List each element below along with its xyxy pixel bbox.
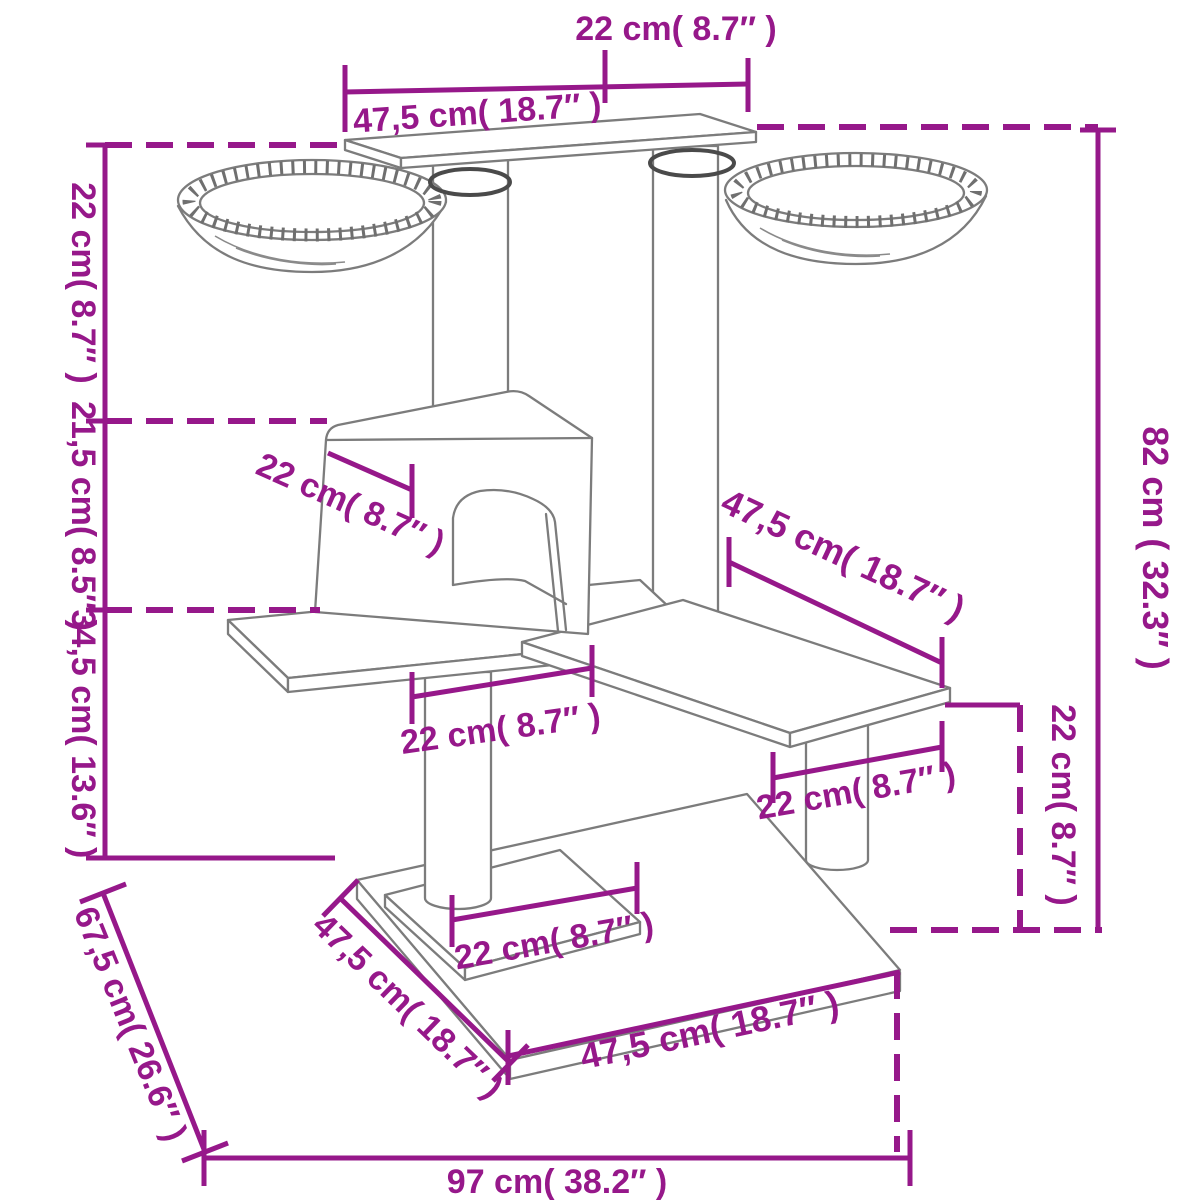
right-bowl xyxy=(725,153,987,264)
cat-tree-dimension-diagram: 22 cm( 8.7″ ) 47,5 cm( 18.7″ ) 22 cm( 8.… xyxy=(0,0,1200,1200)
diagram-canvas: 22 cm( 8.7″ ) 47,5 cm( 18.7″ ) 22 cm( 8.… xyxy=(0,0,1200,1200)
house-support-post xyxy=(425,672,491,909)
dim-height-lower-section: 34,5 cm( 13.6″ ) xyxy=(64,610,102,859)
dim-step-height: 22 cm( 8.7″ ) xyxy=(1044,704,1082,906)
dim-base-depth-diagonal: 67,5 cm( 26.6″ ) xyxy=(66,901,194,1146)
left-bowl xyxy=(178,160,446,272)
dim-height-top-section: 22 cm( 8.7″ ) xyxy=(64,182,102,384)
tall-post xyxy=(653,146,718,628)
dim-height-mid-section: 21,5 cm( 8.5″ ) xyxy=(64,401,102,631)
dim-base-width: 97 cm( 38.2″ ) xyxy=(447,1163,667,1200)
dim-mid-platform-length: 47,5 cm( 18.7″ ) xyxy=(715,480,971,628)
dim-top-overhang: 22 cm( 8.7″ ) xyxy=(575,10,777,48)
dim-total-height: 82 cm ( 32.3″ ) xyxy=(1135,426,1176,669)
